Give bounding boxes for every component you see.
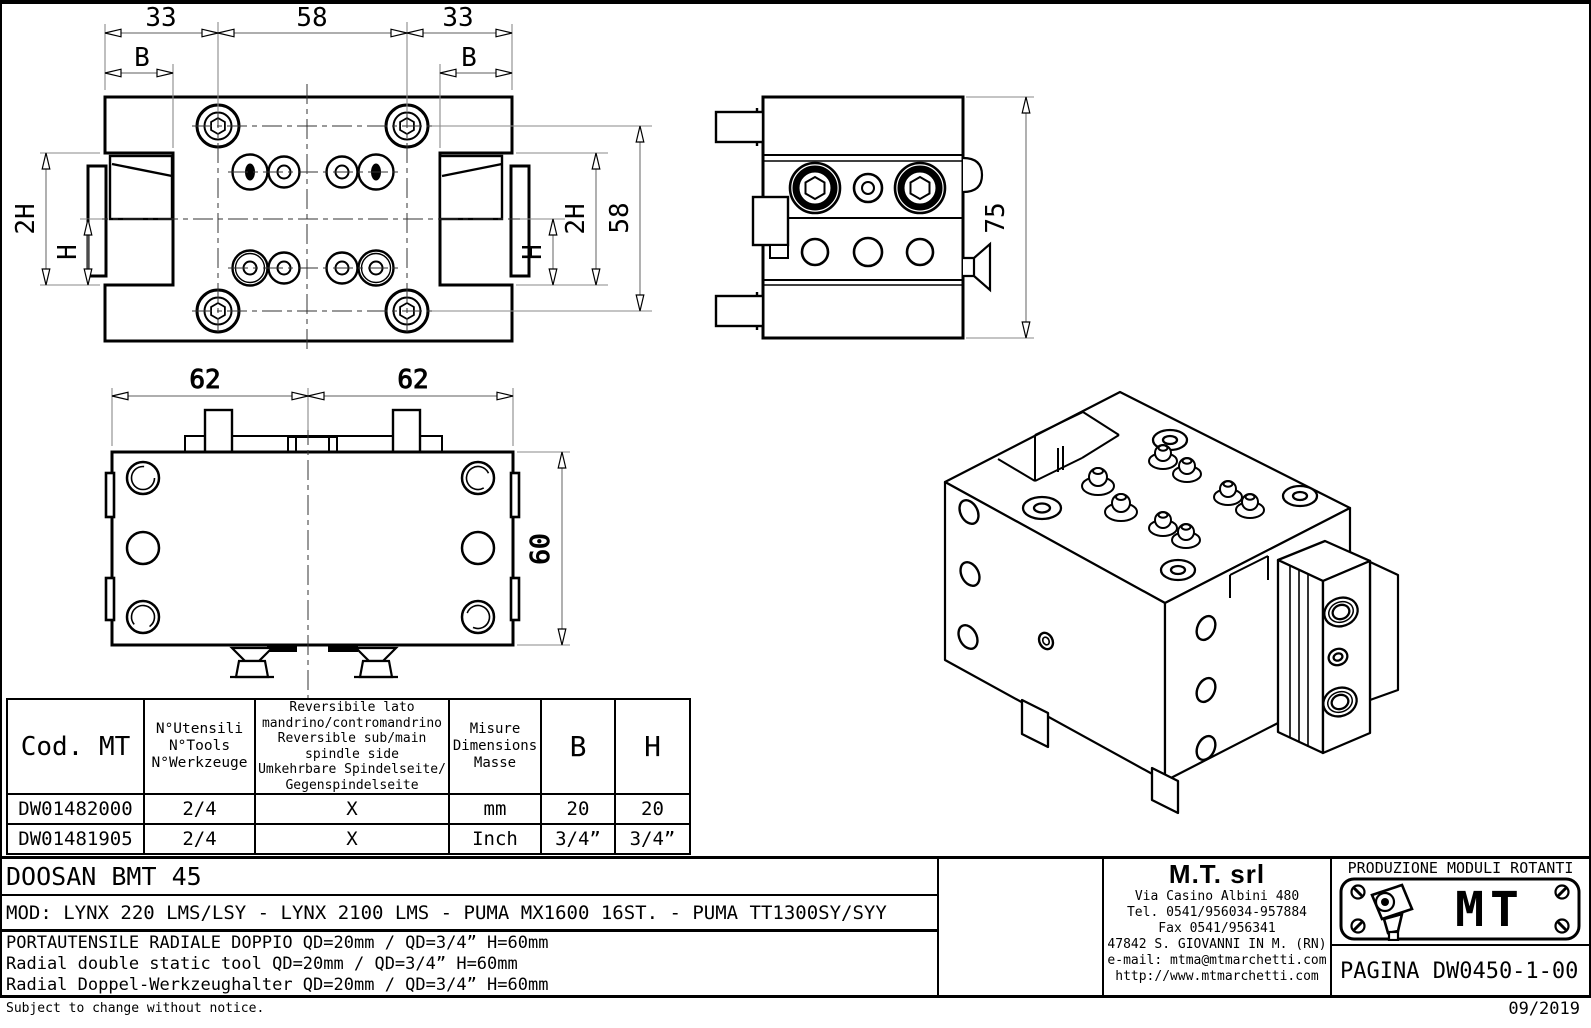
- header-measure: Misure Dimensions Masse: [449, 699, 541, 794]
- header-tools: N°Utensili N°Tools N°Werkzeuge: [144, 699, 255, 794]
- front-view-bottom-cones: [230, 645, 398, 677]
- table-header-row: Cod. MT N°Utensili N°Tools N°Werkzeuge R…: [7, 699, 690, 794]
- dim-58-top: 58: [296, 3, 327, 33]
- dim-58-right: 58: [605, 202, 635, 233]
- right-clamp-wedge: [440, 156, 529, 276]
- manufacturer-phone: Tel. 0541/956034-957884: [1104, 905, 1330, 921]
- frame-left: [0, 0, 2, 997]
- titleblock-rule: [0, 929, 937, 932]
- mt-logo: MT: [1338, 877, 1582, 941]
- dim-2h-right: 2H: [561, 203, 591, 234]
- description-en: Radial double static tool QD=20mm / QD=3…: [6, 954, 934, 975]
- logo-text: MT: [1455, 882, 1525, 938]
- dim-75: 75: [981, 202, 1011, 233]
- top-view: 33 58 33 B B 2H H H 2H 58: [11, 3, 652, 354]
- description-de: Radial Doppel-Werkzeughalter QD=20mm / Q…: [6, 975, 934, 996]
- cell-b: 20: [541, 794, 615, 824]
- titleblock-divider: [1330, 856, 1332, 997]
- manufacturer-email: e-mail: mtma@mtmarchetti.com: [1104, 953, 1330, 969]
- manufacturer-website: http://www.mtmarchetti.com: [1104, 969, 1330, 985]
- header-h: H: [615, 699, 690, 794]
- revision-date: 09/2019: [1440, 999, 1580, 1019]
- header-b: B: [541, 699, 615, 794]
- dim-62-right: 62: [397, 365, 428, 395]
- page-number: PAGINA DW0450-1-00: [1340, 948, 1585, 995]
- cell-h: 3/4”: [615, 824, 690, 854]
- frame-bottom: [0, 995, 1591, 998]
- dim-b-right: B: [461, 43, 477, 73]
- footer-note: Subject to change without notice.: [6, 1001, 264, 1016]
- cell-measure: Inch: [449, 824, 541, 854]
- side-view-dimension: 75: [966, 97, 1034, 338]
- machine-models-line: MOD: LYNX 220 LMS/LSY - LYNX 2100 LMS - …: [6, 898, 934, 928]
- table-row: DW01481905 2/4 X Inch 3/4” 3/4”: [7, 824, 690, 854]
- titleblock-rule: [1330, 944, 1591, 946]
- left-clamp-wedge: [88, 156, 172, 276]
- drawing-sheet: 33 58 33 B B 2H H H 2H 58: [0, 0, 1591, 1028]
- manufacturer-fax: Fax 0541/956341: [1104, 921, 1330, 937]
- header-cod: Cod. MT: [7, 699, 144, 794]
- frame-top: [0, 0, 1591, 4]
- spec-table: Cod. MT N°Utensili N°Tools N°Werkzeuge R…: [6, 698, 691, 855]
- cell-rev: X: [255, 824, 449, 854]
- manufacturer-address: Via Casino Albini 480: [1104, 889, 1330, 905]
- isometric-view: [945, 392, 1398, 813]
- table-row: DW01482000 2/4 X mm 20 20: [7, 794, 690, 824]
- dim-b-left: B: [134, 43, 150, 73]
- dim-33-left: 33: [145, 3, 176, 33]
- front-view-top-tabs: [185, 410, 442, 452]
- cell-tools: 2/4: [144, 794, 255, 824]
- titleblock-rule: [0, 894, 937, 896]
- cell-h: 20: [615, 794, 690, 824]
- titleblock-divider: [937, 856, 939, 997]
- front-view: 62 62 60: [106, 365, 570, 700]
- cell-measure: mm: [449, 794, 541, 824]
- side-view: 75: [716, 97, 1034, 338]
- manufacturer-city: 47842 S. GIOVANNI IN M. (RN): [1104, 937, 1330, 953]
- cell-cod: DW01482000: [7, 794, 144, 824]
- cell-b: 3/4”: [541, 824, 615, 854]
- dim-2h-left: 2H: [11, 203, 41, 234]
- manufacturer-block: M.T. srl Via Casino Albini 480 Tel. 0541…: [1104, 859, 1330, 995]
- logo-tagline: PRODUZIONE MODULI ROTANTI: [1332, 859, 1589, 877]
- dim-h-left: H: [53, 244, 83, 260]
- header-reversible: Reversibile lato mandrino/contromandrino…: [255, 699, 449, 794]
- cell-rev: X: [255, 794, 449, 824]
- manufacturer-name: M.T. srl: [1104, 859, 1330, 889]
- cell-cod: DW01481905: [7, 824, 144, 854]
- dim-60: 60: [526, 533, 556, 564]
- description-it: PORTAUTENSILE RADIALE DOPPIO QD=20mm / Q…: [6, 933, 934, 954]
- dim-h-right: H: [518, 244, 548, 260]
- model-title: DOOSAN BMT 45: [6, 860, 931, 894]
- dim-62-left: 62: [189, 365, 220, 395]
- front-view-body: [112, 452, 513, 645]
- dim-33-right: 33: [442, 3, 473, 33]
- iso-clamp-block: [1278, 541, 1370, 753]
- cell-tools: 2/4: [144, 824, 255, 854]
